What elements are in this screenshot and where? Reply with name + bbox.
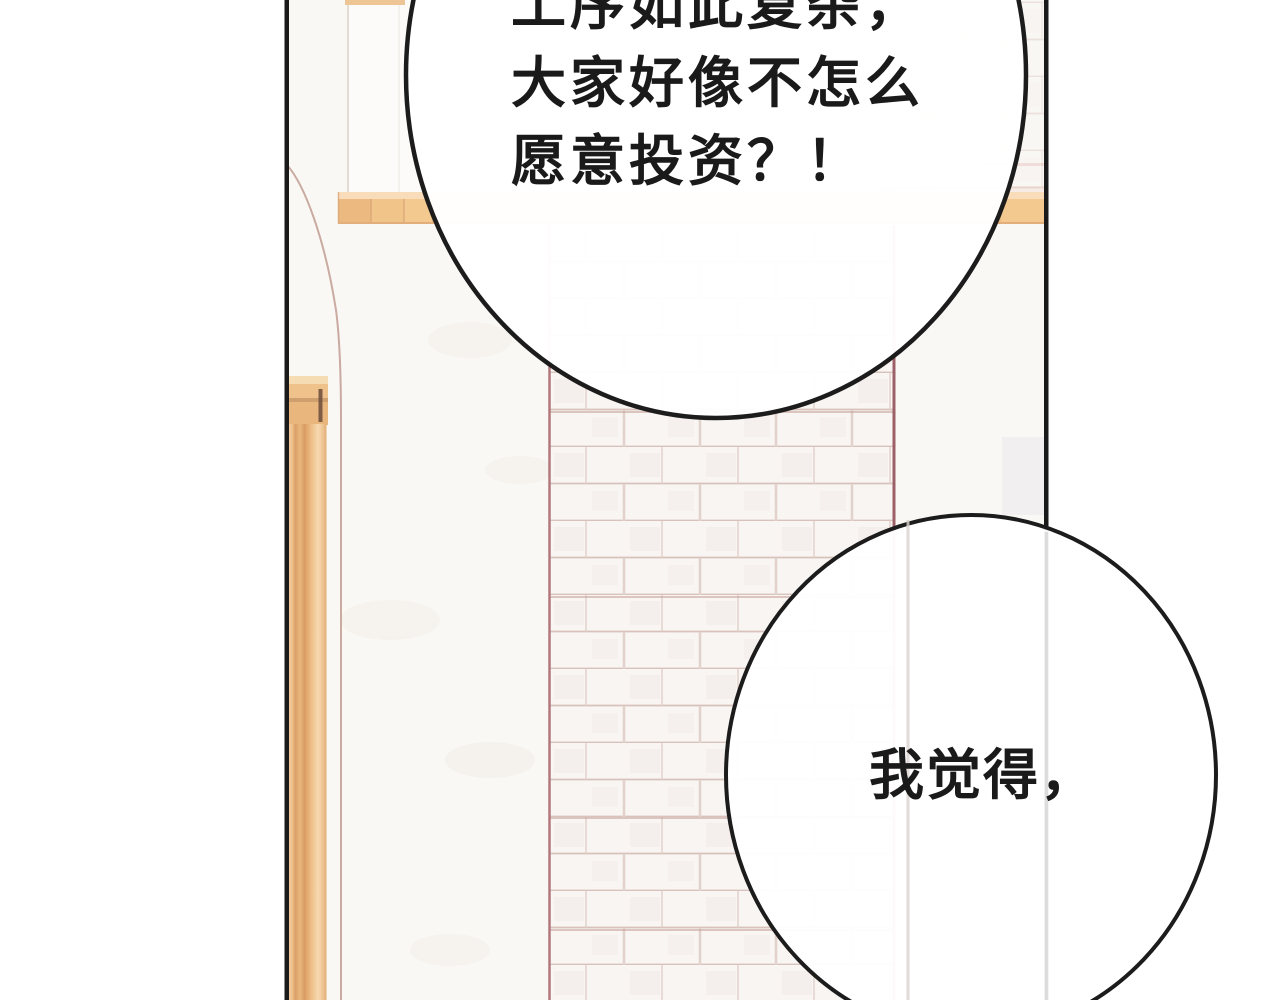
- pilaster-capital: [287, 376, 328, 384]
- dialogue-line-3: 愿意投资？！: [511, 122, 924, 200]
- dialogue-line-4: 我觉得，: [869, 744, 1097, 806]
- comic-page: 工序如此复杂， 大家好像不怎么 愿意投资？！ 我觉得，: [0, 0, 1280, 1000]
- dialogue-line-2: 大家好像不怎么: [511, 44, 924, 122]
- wall-shading-patch: [1002, 437, 1045, 515]
- dialogue-line-1: 工序如此复杂，: [511, 0, 924, 44]
- bottom-bubble-text: 我觉得，: [869, 744, 1097, 806]
- gold-pilaster: [287, 376, 328, 1000]
- top-bubble-text: 工序如此复杂， 大家好像不怎么 愿意投资？！: [511, 0, 924, 200]
- pilaster-shaft: [289, 424, 327, 1000]
- panel-left-border: [285, 0, 290, 1000]
- top-beam-sliver: [345, 0, 405, 5]
